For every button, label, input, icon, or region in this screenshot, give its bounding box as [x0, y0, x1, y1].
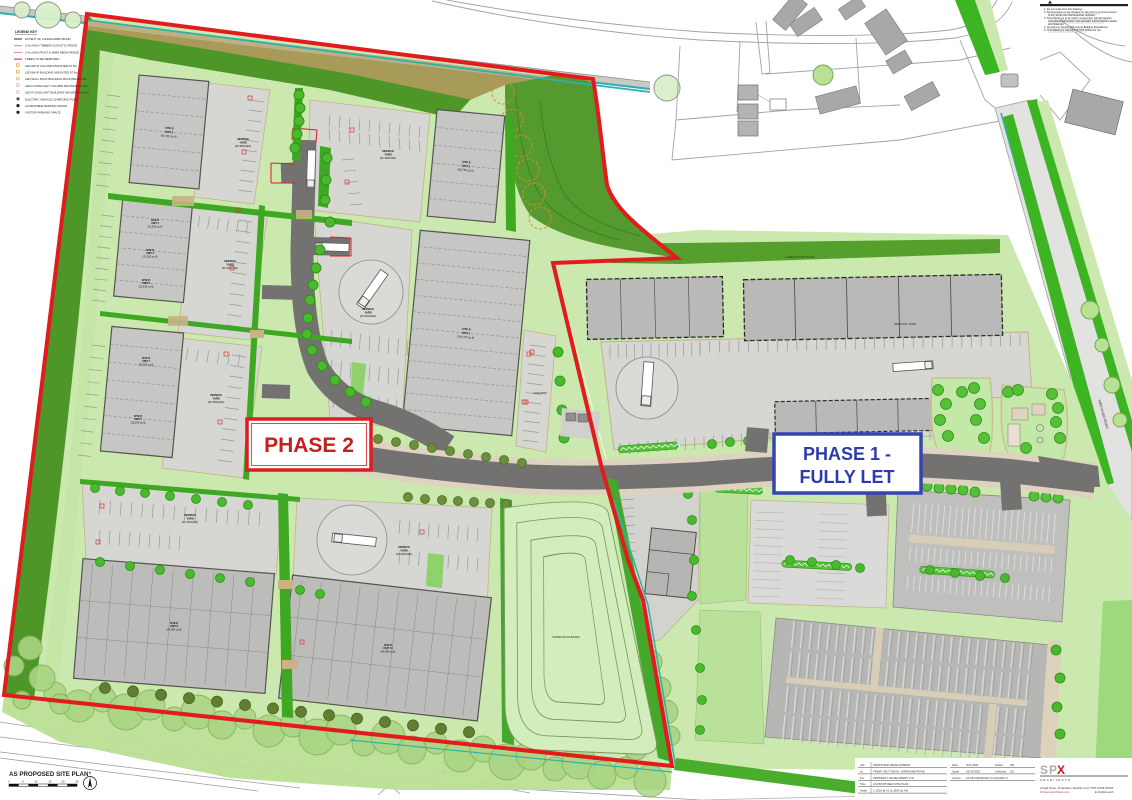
- svg-text:SITE B: SITE B: [462, 327, 471, 332]
- svg-text:SITE B: SITE B: [165, 126, 174, 131]
- svg-text:LED 8W IP COLUMN MOUNTED AT 6m: LED 8W IP COLUMN MOUNTED AT 6m: [25, 64, 77, 68]
- svg-text:FRIARY MOT ROAD / WREXHAM ROAD: FRIARY MOT ROAD / WREXHAM ROAD: [873, 769, 925, 773]
- svg-text:SERVICE: SERVICE: [398, 545, 410, 549]
- svg-text:UNIT 1: UNIT 1: [462, 331, 471, 336]
- svg-text:LEGEND KEY: LEGEND KEY: [15, 30, 38, 34]
- svg-text:(40 SPACES): (40 SPACES): [182, 520, 198, 524]
- svg-text:Scale: Scale: [952, 769, 959, 773]
- svg-text:SERVICE: SERVICE: [210, 393, 222, 397]
- svg-text:CD: CD: [1010, 769, 1014, 773]
- svg-text:AS PROPOSED SITE PLAN: AS PROPOSED SITE PLAN: [9, 771, 89, 778]
- svg-text:PHASE 2: PHASE 2: [264, 434, 354, 457]
- svg-text:1:1250 @ A1 (1:2500 @ A3): 1:1250 @ A1 (1:2500 @ A3): [873, 789, 908, 793]
- svg-text:ACCESSIBLE PARKING SPACE: ACCESSIBLE PARKING SPACE: [25, 104, 67, 108]
- svg-text:ARCHITECTS: ARCHITECTS: [1040, 778, 1071, 782]
- svg-text:(40 SPACES): (40 SPACES): [235, 144, 251, 148]
- svg-text:Job: Job: [860, 763, 865, 767]
- svg-text:At: At: [860, 769, 863, 773]
- svg-text:(32,290 sq ft): (32,290 sq ft): [131, 421, 146, 424]
- svg-text:LED FLOODLIGHT COLUMN MOUNTED: LED FLOODLIGHT COLUMN MOUNTED AT 8m: [25, 84, 88, 88]
- svg-text:(40 SPACES): (40 SPACES): [360, 314, 376, 318]
- svg-text:(32,290 sq ft): (32,290 sq ft): [139, 363, 154, 366]
- svg-text:AS NOTED: AS NOTED: [966, 769, 980, 773]
- svg-text:Date: Date: [952, 763, 958, 767]
- svg-text:SERVICE: SERVICE: [184, 513, 196, 517]
- svg-text:LED 8W IP BUILDING MOUNTED AT: LED 8W IP BUILDING MOUNTED AT 6m: [25, 71, 79, 75]
- svg-text:5. This drawing is copyright o: 5. This drawing is copyright of SPX Arch…: [1044, 28, 1101, 32]
- svg-text:T 01978 000000: T 01978 000000: [1095, 787, 1114, 790]
- svg-text:2.4m HIGH TIMBER ACOUSTIC FENC: 2.4m HIGH TIMBER ACOUSTIC FENCE: [25, 44, 77, 48]
- svg-text:SERVICE: SERVICE: [382, 149, 394, 153]
- svg-text:(40 SPACES): (40 SPACES): [380, 156, 396, 160]
- svg-text:SERVICE: SERVICE: [224, 259, 236, 263]
- svg-text:Checked: Checked: [995, 769, 1006, 773]
- svg-text:Scale: Scale: [860, 789, 867, 793]
- svg-text:YARD: YARD: [239, 141, 246, 145]
- svg-text:SP: SP: [1040, 763, 1058, 777]
- svg-text:JUN 2021: JUN 2021: [966, 763, 979, 767]
- svg-text:W www.spxarchitects.com: W www.spxarchitects.com: [1040, 791, 1069, 794]
- svg-text:YARD: YARD: [212, 397, 219, 401]
- svg-text:LED WALL PACK BUILDING MOUNTED: LED WALL PACK BUILDING MOUNTED AT 6m: [25, 77, 87, 81]
- svg-text:CAR PARK: CAR PARK: [533, 391, 547, 395]
- svg-text:ELECTRIC VEHICLE CHARGING POIN: ELECTRIC VEHICLE CHARGING POINT: [25, 97, 79, 101]
- svg-text:PHASE 1 -: PHASE 1 -: [803, 444, 891, 464]
- svg-text:(21,530 sq ft): (21,530 sq ft): [148, 225, 163, 228]
- svg-text:SERVICE: SERVICE: [237, 137, 249, 141]
- svg-text:AS PROPOSED SITE PLAN: AS PROPOSED SITE PLAN: [873, 782, 908, 786]
- svg-text:(21,530 sq ft): (21,530 sq ft): [139, 285, 154, 288]
- svg-text:(64,580 sq ft): (64,580 sq ft): [167, 628, 182, 631]
- svg-text:X: X: [1057, 763, 1065, 777]
- svg-text:PROPERTY DEVELOPERS LTD: PROPERTY DEVELOPERS LTD: [873, 776, 914, 780]
- svg-text:2.4m HIGH POST & WIRE MESH FEN: 2.4m HIGH POST & WIRE MESH FENCE: [25, 50, 79, 54]
- svg-text:E info@spx.arch: E info@spx.arch: [1095, 791, 1114, 794]
- svg-text:UNIT 2: UNIT 2: [462, 164, 471, 169]
- svg-text:21-034 DRAWING No 100 REV A: 21-034 DRAWING No 100 REV A: [966, 776, 1008, 780]
- svg-text:(40 SPACES): (40 SPACES): [208, 400, 224, 404]
- svg-text:SERVICE YARD: SERVICE YARD: [894, 322, 917, 326]
- svg-text:Drawn: Drawn: [995, 763, 1004, 767]
- svg-text:For: For: [860, 776, 864, 780]
- svg-text:Job No: Job No: [952, 776, 961, 780]
- svg-text:YARD: YARD: [186, 517, 193, 521]
- svg-text:SERVICE: SERVICE: [362, 307, 374, 311]
- svg-text:(40 SPACES): (40 SPACES): [396, 552, 412, 556]
- svg-text:YARD: YARD: [400, 549, 407, 553]
- svg-text:DETENTION BASIN: DETENTION BASIN: [552, 635, 579, 639]
- svg-text:(64,580 sq ft): (64,580 sq ft): [381, 650, 396, 653]
- svg-text:LANDSCAPED BUND: LANDSCAPED BUND: [785, 255, 816, 259]
- svg-text:YARD: YARD: [364, 311, 371, 315]
- svg-text:UNIT 2: UNIT 2: [165, 130, 174, 135]
- svg-text:VISITOR PARKING SPACE: VISITOR PARKING SPACE: [25, 111, 61, 115]
- svg-text:EXTENT OF LANDSCAPED BUND: EXTENT OF LANDSCAPED BUND: [25, 37, 71, 41]
- svg-text:TREES TO BE REMOVED: TREES TO BE REMOVED: [25, 57, 59, 61]
- svg-text:(21,530 sq ft): (21,530 sq ft): [143, 255, 158, 258]
- svg-text:SITE B: SITE B: [462, 160, 471, 165]
- svg-text:FULLY LET: FULLY LET: [799, 467, 894, 487]
- svg-text:A Tegid House, 23 Sandown, Wr: A Tegid House, 23 Sandown, Wrexham LL13 …: [1040, 787, 1095, 790]
- svg-text:LED FLOODLIGHT BUILDING MOUNTE: LED FLOODLIGHT BUILDING MOUNTED AT 8m: [25, 91, 89, 95]
- svg-text:Title: Title: [860, 782, 866, 786]
- svg-text:YARD: YARD: [384, 153, 391, 157]
- svg-text:PROPOSED DEVELOPMENT: PROPOSED DEVELOPMENT: [873, 763, 911, 767]
- svg-text:AB: AB: [1010, 763, 1014, 767]
